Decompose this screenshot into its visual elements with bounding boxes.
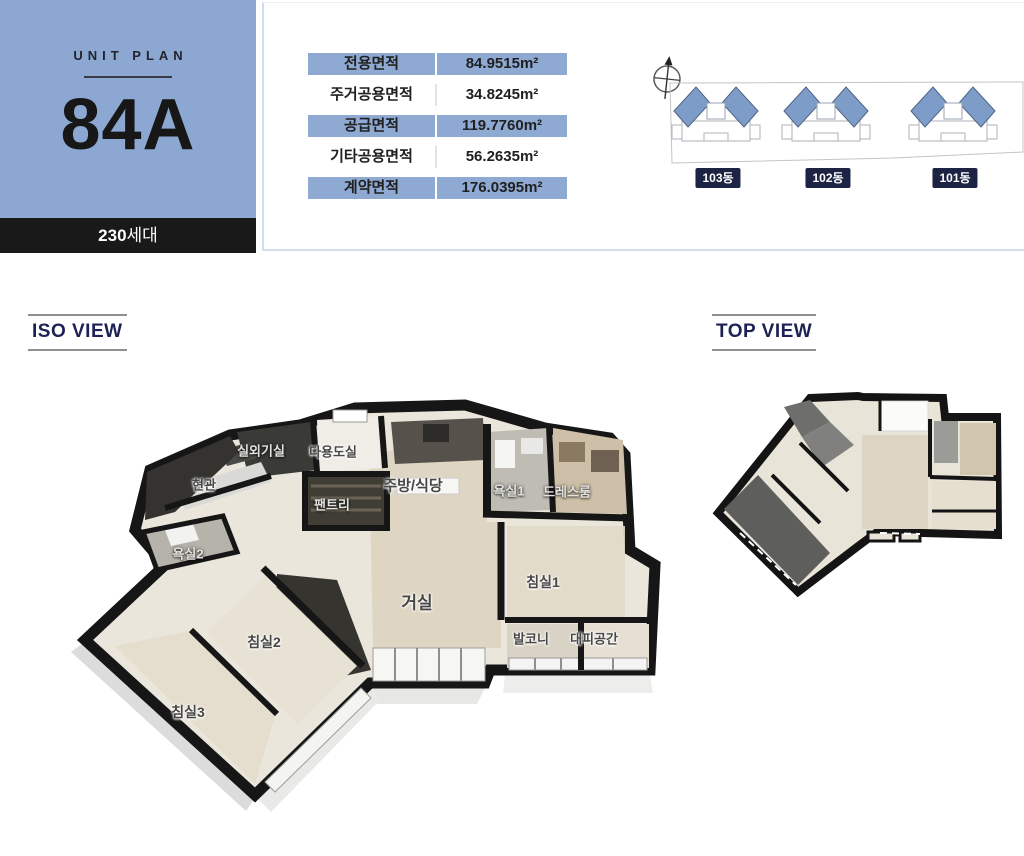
room-label: 침실3	[171, 702, 205, 722]
site-plan: 103동102동101동	[645, 55, 1024, 195]
dressroom-cabinet	[591, 450, 619, 472]
compass-icon	[652, 55, 682, 100]
room-label: 거실	[401, 589, 432, 614]
bath1-fixture	[495, 440, 515, 468]
bath1-fixture	[521, 438, 543, 454]
room-label: 침실1	[526, 572, 560, 592]
buildings-layer	[672, 87, 997, 141]
iso-floor-plan: 실외기실다용도실현관팬트리주방/식당욕실1드레스룸욕실2거실침실1발코니대피공간…	[25, 380, 665, 830]
top-bedroom1-floor	[932, 481, 996, 529]
building-footprint	[909, 87, 997, 141]
unit-card-divider	[84, 76, 172, 78]
room-label: 드레스룸	[543, 482, 591, 501]
area-value: 34.8245m²	[435, 84, 567, 106]
top-dressroom-floor	[960, 423, 996, 475]
unit-plan-eyebrow: UNIT PLAN	[0, 48, 256, 63]
households-count: 230	[98, 226, 126, 245]
area-label: 전용면적	[308, 53, 435, 75]
building-footprint	[782, 87, 870, 141]
unit-card: UNIT PLAN 84A 230세대	[0, 0, 256, 253]
area-table-row: 주거공용면적34.8245m²	[308, 84, 567, 106]
room-label: 욕실1	[493, 481, 524, 500]
room-label: 실외기실	[237, 441, 285, 460]
building-footprint	[672, 87, 760, 141]
area-table: 전용면적84.9515m²주거공용면적34.8245m²공급면적119.7760…	[308, 53, 567, 199]
kitchen-hood	[423, 424, 449, 442]
top-bath-gray	[934, 421, 958, 463]
bedroom1-floor	[507, 526, 625, 618]
area-table-row: 전용면적84.9515m²	[308, 53, 567, 75]
top-kitchen-white	[880, 401, 928, 431]
area-label: 공급면적	[308, 115, 435, 137]
room-label: 욕실2	[172, 544, 203, 563]
households-suffix: 세대	[127, 226, 158, 245]
area-table-row: 공급면적119.7760m²	[308, 115, 567, 137]
dressroom-cabinet	[559, 442, 585, 462]
outer-wall-band	[503, 675, 653, 693]
area-value: 84.9515m²	[435, 53, 567, 75]
living-window-band	[373, 648, 485, 681]
unit-code: 84A	[0, 88, 256, 164]
unit-card-blue-panel: UNIT PLAN 84A	[0, 0, 256, 218]
room-label: 팬트리	[314, 495, 350, 514]
room-label: 발코니	[513, 629, 549, 648]
room-label: 다용도실	[309, 442, 357, 461]
top-living-floor	[862, 435, 928, 529]
area-table-row: 기타공용면적56.2635m²	[308, 146, 567, 168]
utility-window	[333, 410, 367, 422]
iso-view-title-text: ISO VIEW	[32, 321, 123, 342]
households-bar: 230세대	[0, 218, 256, 253]
area-value: 56.2635m²	[435, 146, 567, 168]
top-floor-plan-drawing	[700, 385, 1024, 625]
area-value: 119.7760m²	[435, 115, 567, 137]
room-label: 주방/식당	[383, 475, 442, 496]
area-label: 주거공용면적	[308, 84, 435, 106]
unit-plan-page: UNIT PLAN 84A 230세대 전용면적84.9515m²주거공용면적3…	[0, 0, 1024, 856]
top-view-title-text: TOP VIEW	[716, 321, 812, 342]
area-table-row: 계약면적176.0395m²	[308, 177, 567, 199]
room-label: 현관	[192, 475, 216, 494]
top-floor-plan	[700, 385, 1024, 625]
outer-wall-band	[363, 688, 485, 704]
top-view-title: TOP VIEW	[712, 314, 816, 351]
building-label: 103동	[695, 168, 740, 188]
area-value: 176.0395m²	[435, 177, 567, 199]
room-label: 침실2	[247, 632, 281, 652]
room-label: 대피공간	[570, 629, 618, 648]
building-label: 102동	[805, 168, 850, 188]
area-label: 계약면적	[308, 177, 435, 199]
building-label: 101동	[932, 168, 977, 188]
area-label: 기타공용면적	[308, 146, 435, 168]
iso-view-title: ISO VIEW	[28, 314, 127, 351]
